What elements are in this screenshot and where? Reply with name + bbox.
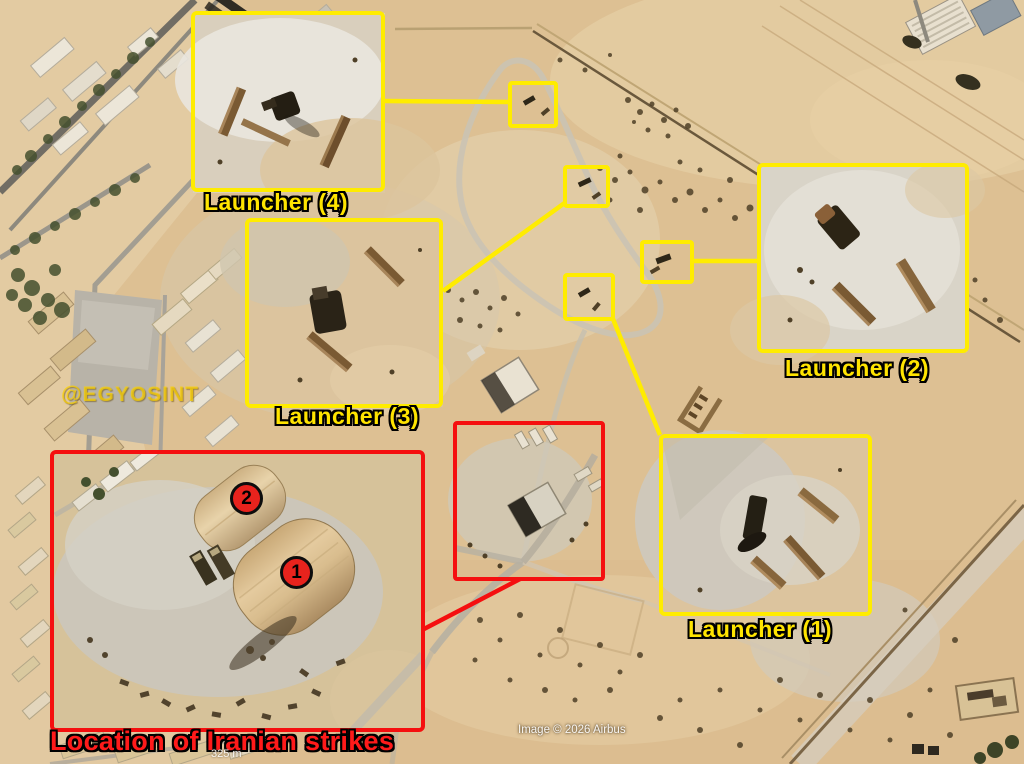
inset-box-launcher-1 bbox=[659, 434, 872, 616]
strike-marker-1-number: 1 bbox=[291, 562, 302, 584]
label-launcher-1: Launcher (1) bbox=[688, 616, 832, 643]
strike-marker-1: 1 bbox=[280, 556, 313, 589]
label-launcher-2: Launcher (2) bbox=[785, 355, 929, 382]
target-box-launcher-1 bbox=[563, 273, 615, 321]
inset-box-launcher-4 bbox=[191, 11, 385, 192]
target-box-launcher-3 bbox=[563, 165, 610, 208]
inset-box-launcher-2 bbox=[757, 163, 969, 353]
imagery-credit: Image © 2026 Airbus bbox=[518, 724, 626, 736]
target-box-strike-site bbox=[453, 421, 605, 581]
target-box-launcher-2 bbox=[640, 240, 694, 284]
scale-label: 325 m bbox=[211, 748, 242, 760]
strike-marker-2: 2 bbox=[230, 482, 263, 515]
watermark: @EGYOSINT bbox=[61, 383, 199, 407]
annotated-satellite-image: 2 1 Launcher (4) Launcher (3) Launcher (… bbox=[0, 0, 1024, 764]
label-launcher-4: Launcher (4) bbox=[204, 189, 348, 216]
label-launcher-3: Launcher (3) bbox=[275, 403, 419, 430]
inset-box-launcher-3 bbox=[245, 218, 443, 408]
strike-marker-2-number: 2 bbox=[241, 488, 252, 510]
connector-launcher-4 bbox=[385, 101, 510, 102]
target-box-launcher-4 bbox=[508, 81, 558, 128]
